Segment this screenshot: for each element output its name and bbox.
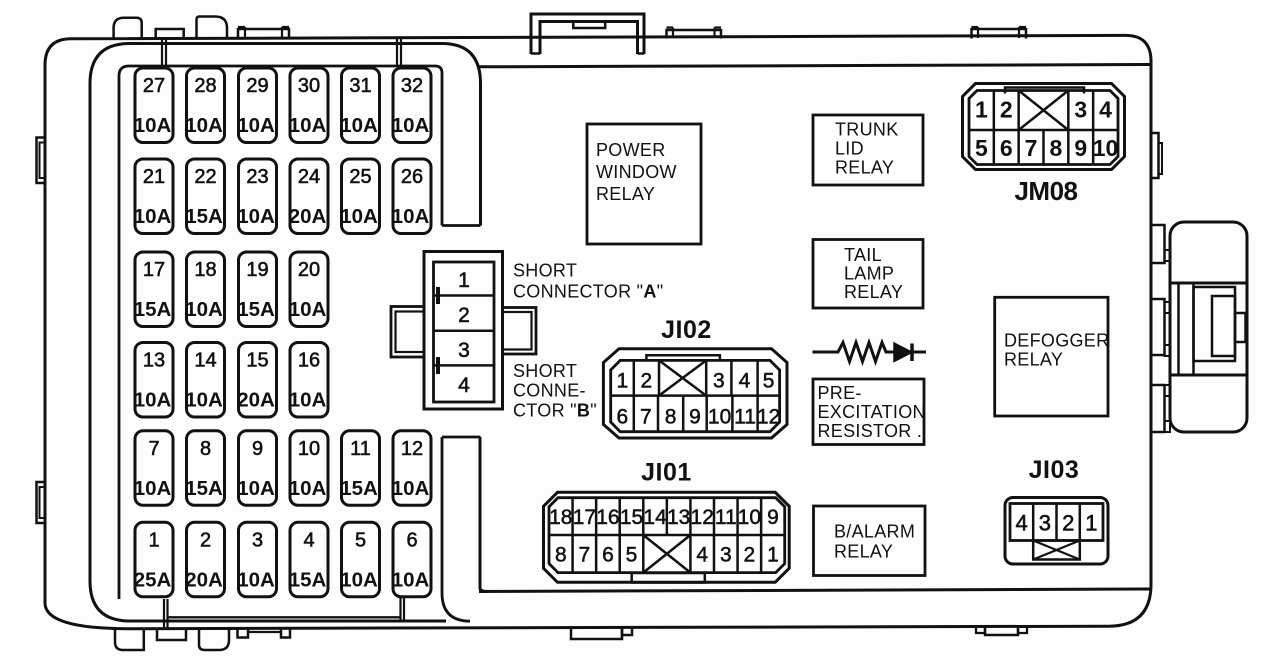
svg-text:10A: 10A <box>237 568 275 591</box>
svg-text:RESISTOR .: RESISTOR . <box>818 421 923 441</box>
svg-text:CONNECTOR "A": CONNECTOR "A" <box>513 282 663 302</box>
svg-text:10A: 10A <box>134 477 172 500</box>
svg-text:CONNE-: CONNE- <box>513 381 586 401</box>
svg-text:11: 11 <box>734 406 756 429</box>
svg-text:14: 14 <box>643 506 667 529</box>
svg-text:20A: 20A <box>185 568 223 591</box>
svg-text:20: 20 <box>298 259 320 281</box>
svg-text:10A: 10A <box>340 205 378 228</box>
svg-text:TRUNK: TRUNK <box>835 120 899 140</box>
svg-text:10A: 10A <box>392 568 430 591</box>
svg-text:22: 22 <box>194 166 216 188</box>
svg-text:15A: 15A <box>185 477 223 500</box>
svg-text:17: 17 <box>573 506 596 529</box>
svg-text:10A: 10A <box>185 298 223 321</box>
svg-text:12: 12 <box>757 406 780 429</box>
svg-text:7: 7 <box>579 544 591 567</box>
svg-text:30: 30 <box>298 75 320 97</box>
svg-text:JI03: JI03 <box>1029 456 1080 484</box>
svg-text:12: 12 <box>691 506 714 529</box>
svg-text:LID: LID <box>835 139 864 159</box>
svg-text:2: 2 <box>1000 97 1013 123</box>
svg-text:31: 31 <box>349 75 371 97</box>
svg-text:10A: 10A <box>289 477 327 500</box>
svg-text:16: 16 <box>596 506 619 529</box>
svg-text:6: 6 <box>616 406 628 429</box>
svg-text:7: 7 <box>640 406 652 429</box>
svg-text:29: 29 <box>246 75 268 97</box>
svg-text:10A: 10A <box>392 477 430 500</box>
svg-text:25A: 25A <box>134 568 172 591</box>
svg-text:5: 5 <box>626 544 638 567</box>
svg-text:B/ALARM: B/ALARM <box>834 522 915 542</box>
svg-text:8: 8 <box>555 544 567 567</box>
svg-text:17: 17 <box>143 259 165 281</box>
svg-text:5: 5 <box>975 135 988 161</box>
svg-text:10A: 10A <box>134 114 172 137</box>
svg-text:10: 10 <box>738 506 761 529</box>
svg-text:24: 24 <box>298 166 320 188</box>
svg-text:9: 9 <box>689 406 701 429</box>
svg-text:13: 13 <box>143 350 165 372</box>
svg-text:15A: 15A <box>185 205 223 228</box>
svg-text:18: 18 <box>549 506 572 529</box>
svg-text:25: 25 <box>349 166 371 188</box>
svg-text:SHORT: SHORT <box>513 261 577 281</box>
svg-text:3: 3 <box>720 544 732 567</box>
svg-text:26: 26 <box>401 166 423 188</box>
svg-text:10A: 10A <box>185 389 223 412</box>
svg-text:4: 4 <box>739 370 751 393</box>
svg-text:3: 3 <box>1074 97 1087 123</box>
svg-text:6: 6 <box>1000 135 1013 161</box>
svg-text:12: 12 <box>401 438 423 460</box>
svg-text:9: 9 <box>767 506 779 529</box>
svg-text:10: 10 <box>298 438 320 460</box>
svg-text:JI01: JI01 <box>641 459 692 487</box>
svg-text:10A: 10A <box>392 205 430 228</box>
svg-text:3: 3 <box>1039 511 1051 536</box>
svg-text:8: 8 <box>665 406 677 429</box>
svg-text:LAMP: LAMP <box>844 264 894 284</box>
svg-text:2: 2 <box>641 370 653 393</box>
svg-text:15A: 15A <box>289 568 327 591</box>
svg-text:5: 5 <box>355 529 366 551</box>
svg-text:9: 9 <box>1074 135 1087 161</box>
svg-text:RELAY: RELAY <box>834 542 893 562</box>
svg-text:10A: 10A <box>289 389 327 412</box>
svg-text:4: 4 <box>1015 511 1027 536</box>
svg-text:9: 9 <box>252 438 263 460</box>
svg-text:4: 4 <box>1099 97 1112 123</box>
svg-text:10A: 10A <box>185 114 223 137</box>
svg-text:7: 7 <box>148 438 159 460</box>
svg-text:JM08: JM08 <box>1014 176 1077 206</box>
svg-text:11: 11 <box>350 438 371 460</box>
svg-text:2: 2 <box>458 304 470 327</box>
svg-text:10: 10 <box>708 406 731 429</box>
svg-text:PRE-: PRE- <box>818 383 862 403</box>
svg-text:1: 1 <box>767 544 779 567</box>
svg-text:14: 14 <box>194 350 216 372</box>
svg-text:RELAY: RELAY <box>596 184 655 204</box>
svg-text:6: 6 <box>406 529 417 551</box>
svg-text:RELAY: RELAY <box>835 158 894 178</box>
svg-text:19: 19 <box>246 259 268 281</box>
svg-text:CTOR "B": CTOR "B" <box>513 401 597 421</box>
svg-text:1: 1 <box>148 529 159 551</box>
svg-text:10A: 10A <box>340 568 378 591</box>
svg-text:7: 7 <box>1025 135 1038 161</box>
svg-text:1: 1 <box>458 269 470 292</box>
svg-text:10A: 10A <box>392 114 430 137</box>
svg-text:15: 15 <box>246 350 268 372</box>
svg-text:RELAY: RELAY <box>1004 350 1063 370</box>
svg-text:23: 23 <box>246 166 268 188</box>
svg-text:15A: 15A <box>237 298 275 321</box>
svg-text:21: 21 <box>143 166 165 188</box>
svg-text:4: 4 <box>303 529 314 551</box>
svg-text:3: 3 <box>713 370 725 393</box>
svg-text:10A: 10A <box>289 298 327 321</box>
svg-text:JI02: JI02 <box>661 316 712 344</box>
svg-text:32: 32 <box>401 75 423 97</box>
svg-text:EXCITATION: EXCITATION <box>818 402 926 422</box>
svg-text:18: 18 <box>194 259 216 281</box>
svg-text:16: 16 <box>298 350 320 372</box>
svg-text:1: 1 <box>975 97 988 123</box>
svg-text:TAIL: TAIL <box>844 245 882 265</box>
svg-text:1: 1 <box>1085 511 1097 536</box>
svg-text:4: 4 <box>696 544 708 567</box>
svg-text:10A: 10A <box>237 114 275 137</box>
svg-text:WINDOW: WINDOW <box>596 162 677 182</box>
svg-text:15A: 15A <box>340 477 378 500</box>
svg-text:10A: 10A <box>289 114 327 137</box>
svg-text:20A: 20A <box>237 389 275 412</box>
svg-text:8: 8 <box>200 438 211 460</box>
svg-text:10A: 10A <box>134 389 172 412</box>
svg-text:15A: 15A <box>134 298 172 321</box>
svg-text:2: 2 <box>744 544 756 567</box>
svg-text:1: 1 <box>616 370 628 393</box>
svg-text:POWER: POWER <box>596 140 666 160</box>
svg-text:2: 2 <box>200 529 211 551</box>
svg-text:10A: 10A <box>237 205 275 228</box>
svg-text:10A: 10A <box>134 205 172 228</box>
svg-text:11: 11 <box>715 506 737 529</box>
svg-text:28: 28 <box>194 75 216 97</box>
svg-text:6: 6 <box>602 544 614 567</box>
svg-text:10: 10 <box>1093 135 1119 161</box>
svg-text:10A: 10A <box>340 114 378 137</box>
svg-text:4: 4 <box>458 374 470 397</box>
svg-text:10A: 10A <box>237 477 275 500</box>
svg-text:3: 3 <box>458 339 470 362</box>
svg-text:3: 3 <box>252 529 263 551</box>
svg-text:15: 15 <box>620 506 643 529</box>
svg-text:20A: 20A <box>289 205 327 228</box>
svg-text:5: 5 <box>763 370 775 393</box>
svg-text:13: 13 <box>667 506 690 529</box>
svg-text:RELAY: RELAY <box>844 282 903 302</box>
svg-text:2: 2 <box>1062 511 1074 536</box>
svg-text:DEFOGGER: DEFOGGER <box>1004 331 1109 351</box>
svg-text:SHORT: SHORT <box>513 361 577 381</box>
svg-text:27: 27 <box>143 75 165 97</box>
svg-text:8: 8 <box>1049 135 1062 161</box>
